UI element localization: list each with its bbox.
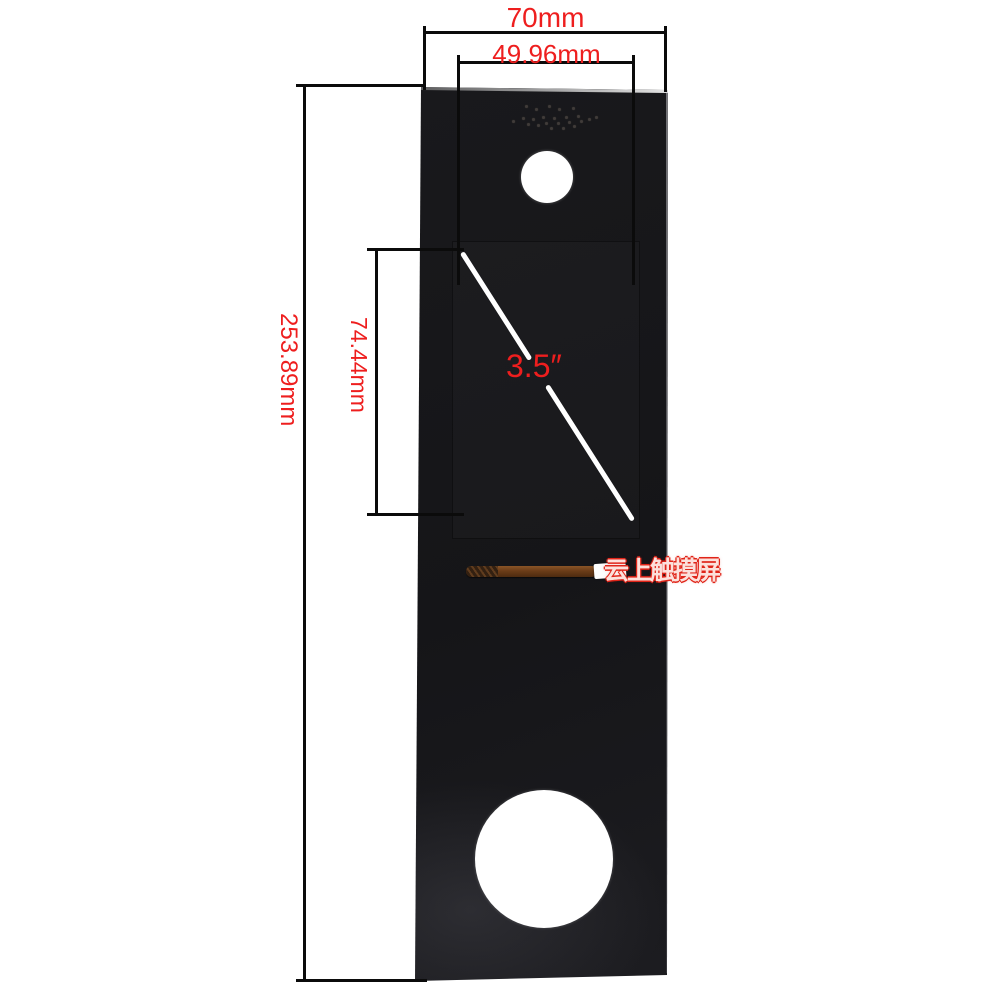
door-lock-glass-panel (415, 87, 668, 981)
dim-overall-width-tick-left (423, 26, 426, 90)
dim-overall-height-tick-bottom (296, 979, 427, 982)
dim-overall-height-line (303, 84, 306, 982)
dim-active-width-tick-right (632, 55, 635, 285)
dim-active-height-tick-bottom (367, 513, 464, 516)
display-diagonal-label: 3.5″ (506, 350, 562, 384)
dim-overall-height-tick-top (296, 84, 425, 87)
dim-active-height-label: 74.44mm (347, 317, 371, 413)
camera-hole (521, 151, 573, 203)
dim-active-height-line (375, 249, 378, 516)
dim-overall-width-label: 70mm (424, 3, 667, 32)
lock-cylinder-hole (475, 790, 613, 928)
dim-overall-height-label: 253.89mm (276, 313, 301, 426)
product-annotation-stage: 70mm 49.96mm 253.89mm 74.44mm 3.5″ 云上触摸屏 (0, 0, 1000, 1000)
panel-right-edge-highlight (666, 91, 668, 973)
flex-cable-connector-end (466, 566, 498, 577)
dim-overall-width-tick-right (664, 26, 667, 92)
watermark-text: 云上触摸屏 (604, 551, 719, 587)
dim-active-height-tick-top (367, 248, 464, 251)
dim-active-width-label: 49.96mm (458, 41, 635, 68)
